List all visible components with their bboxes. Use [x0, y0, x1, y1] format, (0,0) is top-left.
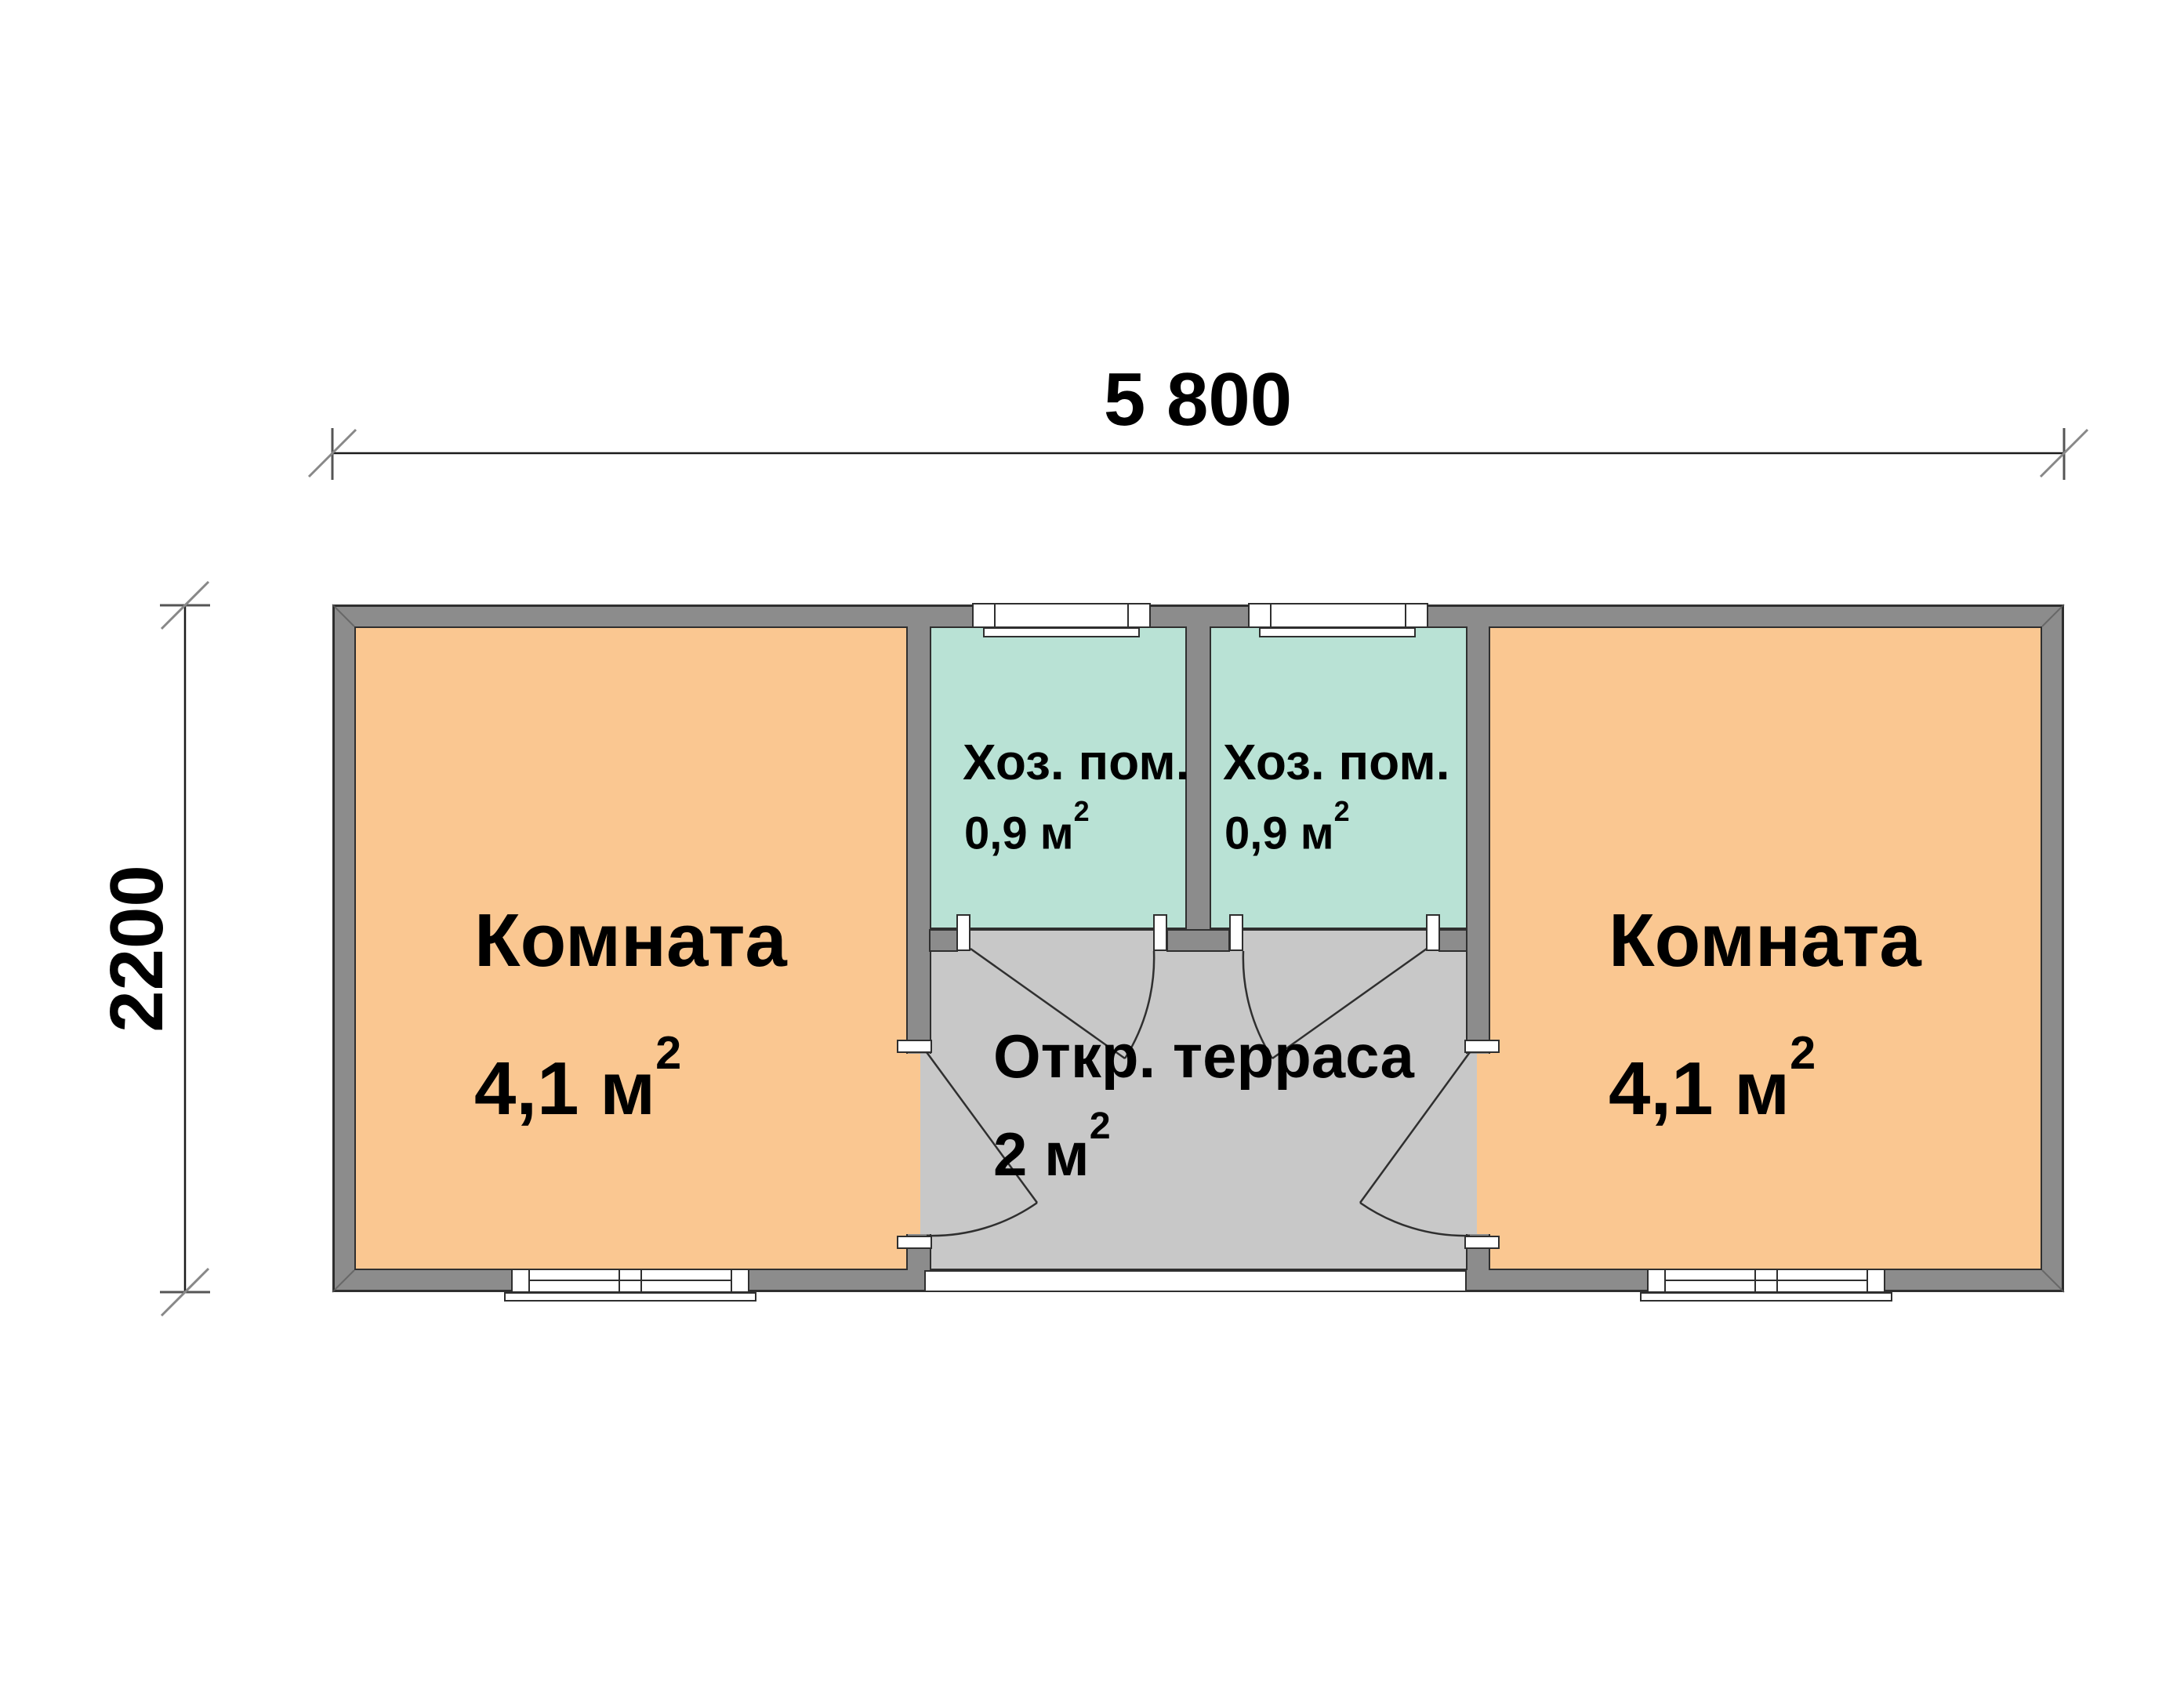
room-right-name-text: Комната: [1609, 899, 1921, 982]
terrace-name-label: Откр. терраса: [993, 1026, 1414, 1087]
room-right-area-label: 4,1 м2: [1609, 1049, 1816, 1127]
plan-linework: [0, 0, 2184, 1681]
terrace-area-text: 2 м: [993, 1120, 1090, 1189]
dimension-height-text: 2200: [95, 865, 179, 1033]
dimension-label-width: 5 800: [1002, 362, 1394, 437]
utility-right-area-sup: 2: [1334, 795, 1350, 827]
utility-left-area-sup: 2: [1074, 795, 1090, 827]
utility-right-area-text: 0,9 м: [1224, 808, 1334, 859]
room-left-name-label: Комната: [474, 903, 787, 978]
floor-plan-canvas: 5 800 2200 Комната 4,1 м2 Хоз. пом. 0,9 …: [0, 0, 2184, 1681]
dimension-width-text: 5 800: [1104, 358, 1292, 441]
utility-right-area-label: 0,9 м2: [1224, 809, 1350, 856]
terrace-name-text: Откр. терраса: [993, 1022, 1414, 1091]
utility-left-area-label: 0,9 м2: [964, 809, 1090, 856]
room-left-area-sup: 2: [655, 1026, 681, 1079]
terrace-area-label: 2 м2: [993, 1123, 1111, 1185]
room-left-name-text: Комната: [474, 899, 787, 982]
utility-right-name-label: Хоз. пом.: [1223, 737, 1450, 787]
room-left-area-label: 4,1 м2: [474, 1049, 681, 1127]
utility-left-name-text: Хоз. пом.: [963, 734, 1190, 790]
dimension-label-height: 2200: [100, 753, 175, 1145]
utility-right-name-text: Хоз. пом.: [1223, 734, 1450, 790]
room-left-area-text: 4,1 м: [474, 1047, 655, 1131]
room-right-area-text: 4,1 м: [1609, 1047, 1790, 1131]
terrace-area-sup: 2: [1090, 1105, 1111, 1147]
utility-left-name-label: Хоз. пом.: [963, 737, 1190, 787]
room-right-area-sup: 2: [1790, 1026, 1816, 1079]
room-right-name-label: Комната: [1609, 903, 1921, 978]
utility-left-area-text: 0,9 м: [964, 808, 1074, 859]
